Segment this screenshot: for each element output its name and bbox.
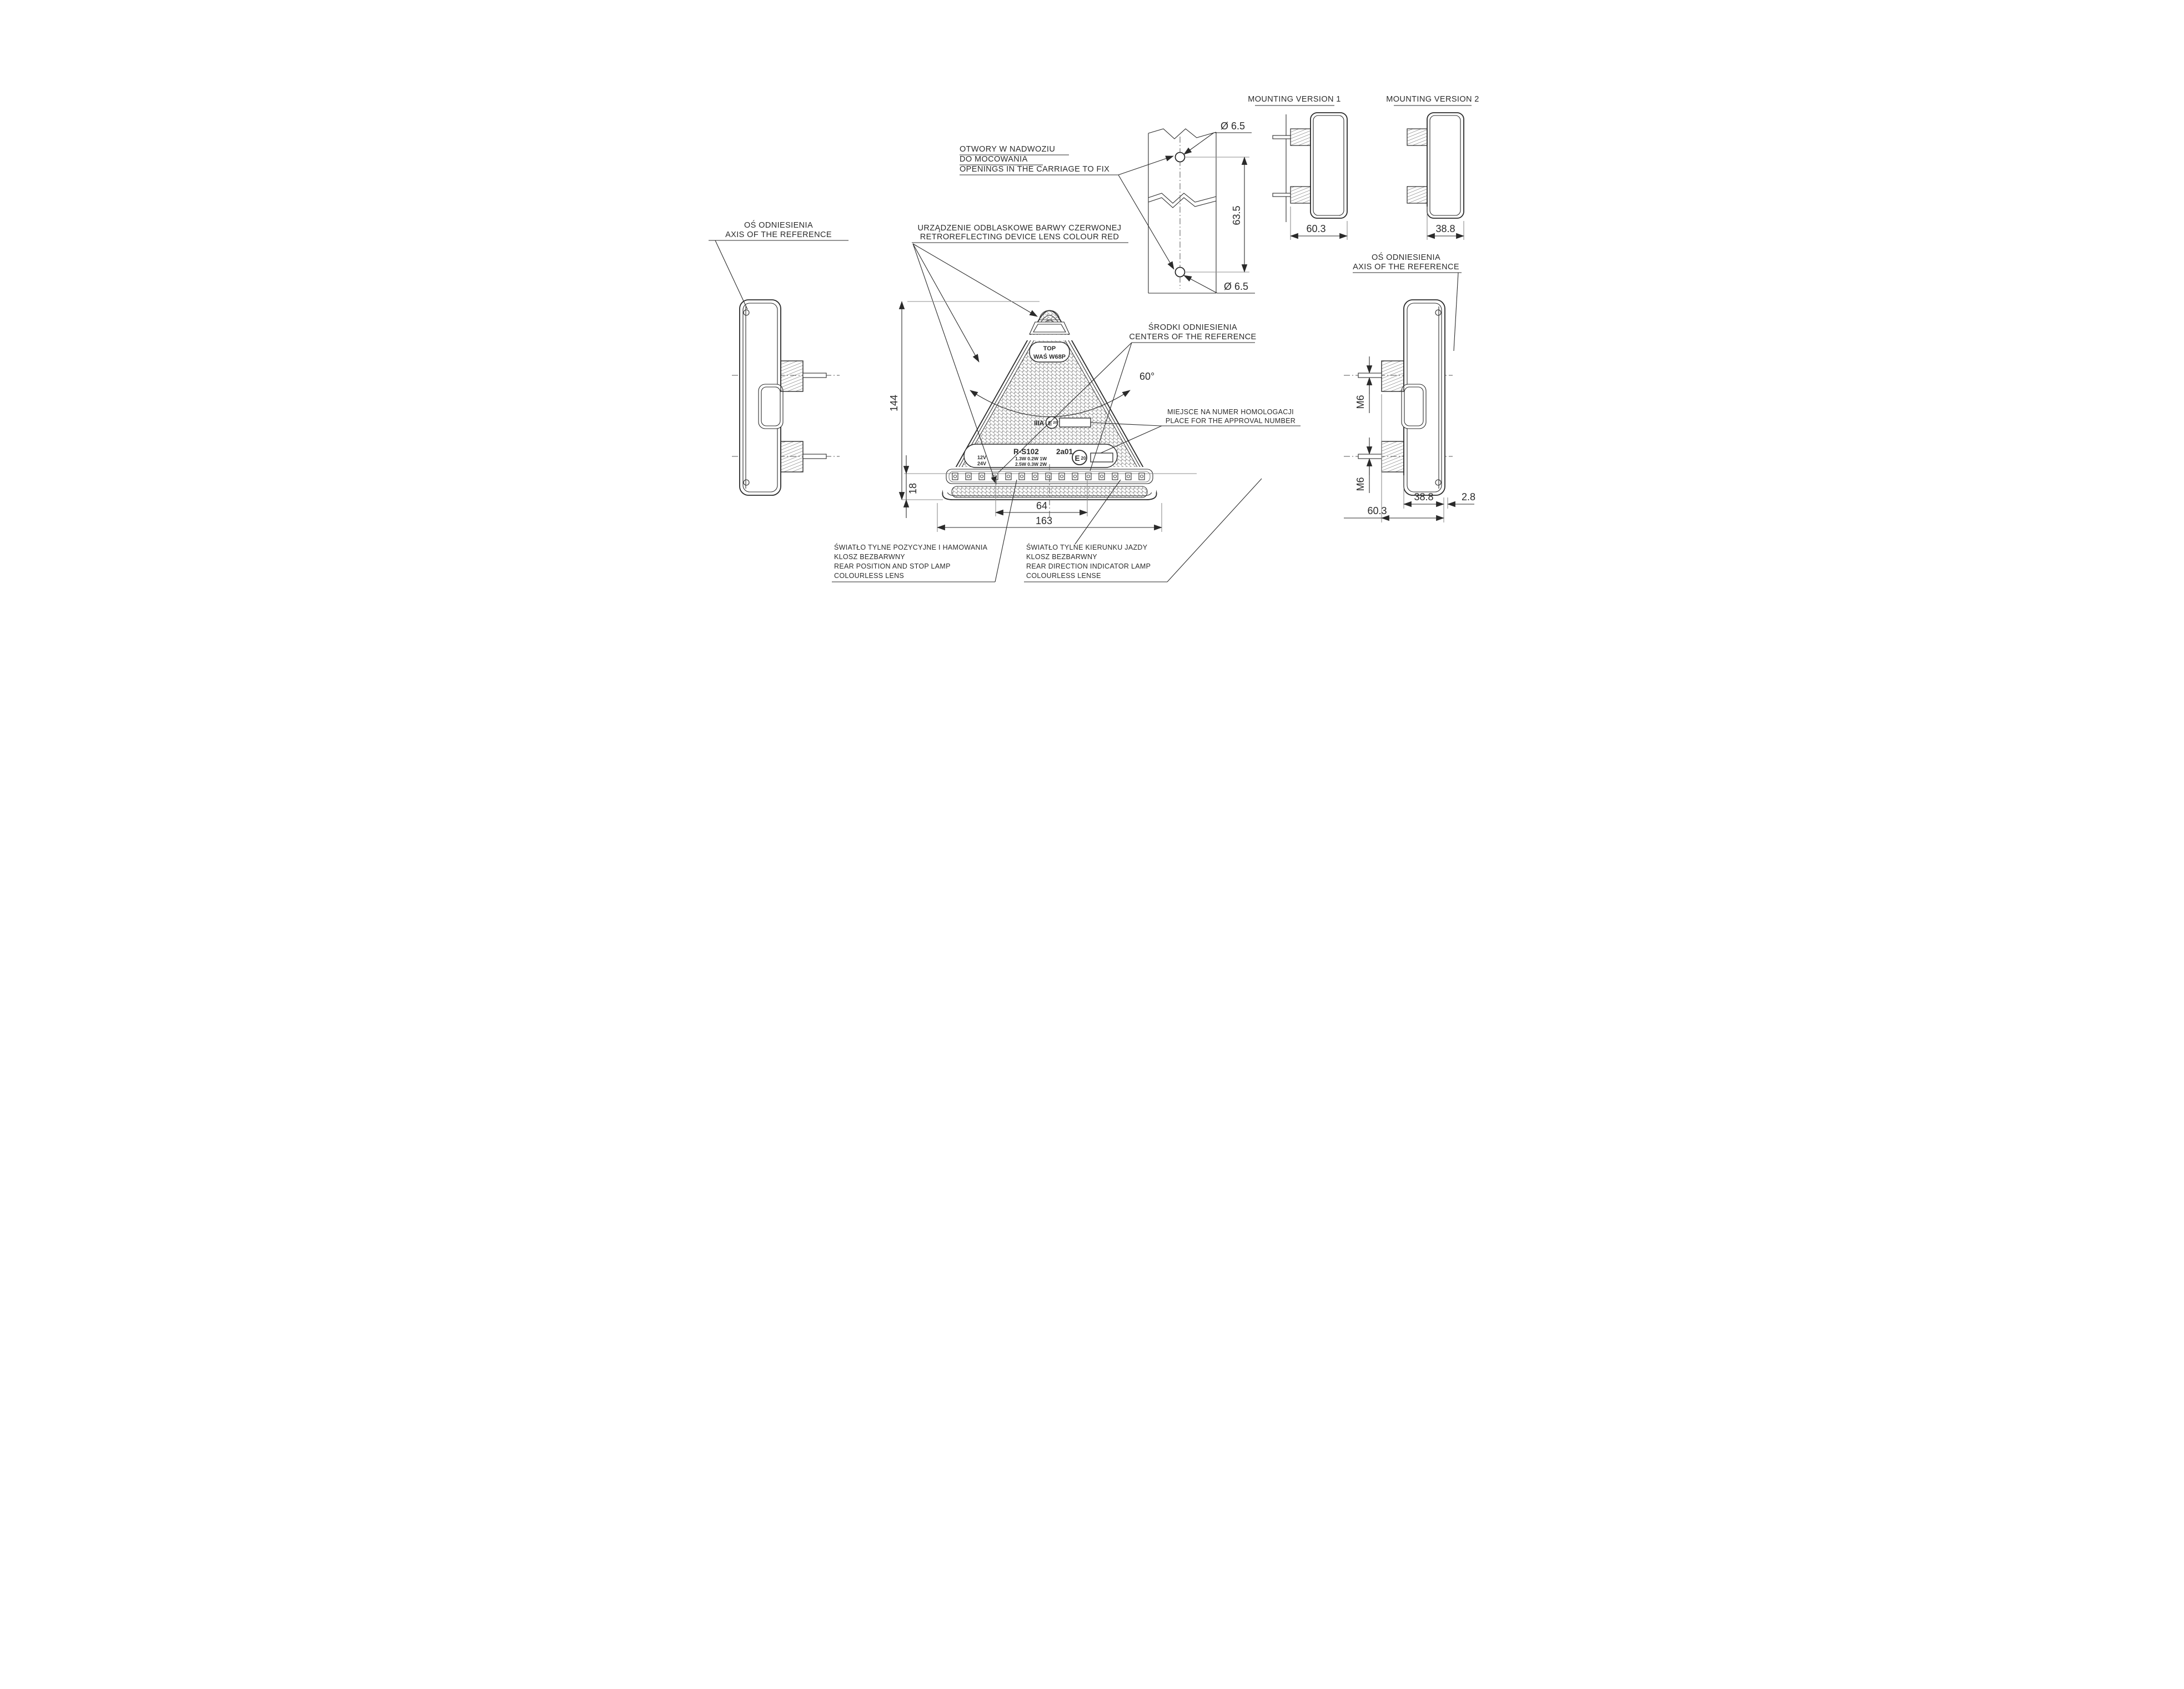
leader bbox=[715, 240, 747, 309]
dim-m6-top: M6 bbox=[1355, 356, 1369, 413]
axis-ref-left-pl: OŚ ODNIESIENIA bbox=[744, 220, 813, 230]
plate-top-break bbox=[1148, 129, 1216, 139]
stud-bottom bbox=[1407, 187, 1427, 203]
axis-ref-right-en: AXIS OF THE REFERENCE bbox=[1353, 263, 1459, 272]
connector-cover bbox=[1402, 384, 1426, 429]
mounting-version-2: MOUNTING VERSION 2 38.8 bbox=[1386, 95, 1479, 240]
connector-cover bbox=[759, 384, 783, 429]
marking-power2: 2.5W 0.3W 2W bbox=[1015, 461, 1047, 467]
openings-en: OPENINGS IN THE CARRIAGE TO FIX bbox=[960, 165, 1109, 174]
leader-band bbox=[913, 244, 996, 484]
stud-bottom bbox=[1291, 187, 1311, 203]
leader-bottom-hole bbox=[1118, 175, 1174, 269]
ind-pl2: KLOSZ BEZBARWNY bbox=[1026, 553, 1097, 561]
dim-hole-dia-top: Ø 6.5 bbox=[1184, 120, 1252, 154]
dim-base-width: 163 bbox=[1036, 515, 1052, 526]
right-side-view: M6 M6 38.8 2.8 60.3 bbox=[1344, 300, 1475, 522]
marking-voltage2: 24V bbox=[977, 461, 986, 466]
dim-depth-body: 38.8 bbox=[1414, 491, 1433, 502]
centers-pl: ŚRODKI ODNIESIENIA bbox=[1148, 322, 1237, 332]
stop-pl2: KLOSZ BEZBARWNY bbox=[834, 553, 905, 561]
approval-number-box-low bbox=[1091, 453, 1113, 462]
housing bbox=[1311, 113, 1347, 218]
mounting-v1-title: MOUNTING VERSION 1 bbox=[1248, 95, 1341, 104]
technical-drawing-sheet: OŚ ODNIESIENIA AXIS OF THE REFERENCE TOP… bbox=[655, 0, 1529, 676]
pin-bottom bbox=[803, 454, 826, 459]
pin-top bbox=[1273, 135, 1291, 139]
pin-top bbox=[1358, 373, 1382, 378]
thread-size-bottom: M6 bbox=[1355, 477, 1366, 491]
mounting-v2-title: MOUNTING VERSION 2 bbox=[1386, 95, 1479, 104]
e-mark-letter-low: E bbox=[1075, 454, 1080, 463]
axis-ref-left-en: AXIS OF THE REFERENCE bbox=[725, 230, 832, 239]
openings-pl1: OTWORY W NADWOZIU bbox=[960, 145, 1055, 154]
pin-top bbox=[803, 373, 826, 378]
housing bbox=[1427, 113, 1464, 218]
dim-height: 144 bbox=[888, 395, 900, 411]
ind-pl1: ŚWIATŁO TYLNE KIERUNKU JAZDY bbox=[1026, 543, 1148, 551]
approval-pl: MIEJSCE NA NUMER HOMOLOGACJI bbox=[1167, 408, 1294, 416]
openings-label: OTWORY W NADWOZIU DO MOCOWANIA OPENINGS … bbox=[960, 145, 1174, 269]
stop-en1: REAR POSITION AND STOP LAMP bbox=[834, 562, 951, 570]
front-view-triangle: TOP WAŚ W68P IIIA E 20 12V 24V R-S102 2a… bbox=[904, 310, 1197, 521]
angle-value: 60° bbox=[1139, 371, 1154, 382]
marking-voltage1: 12V bbox=[977, 455, 986, 460]
marking-model: WAŚ W68P bbox=[1033, 353, 1066, 360]
approval-en: PLACE FOR THE APPROVAL NUMBER bbox=[1166, 417, 1296, 425]
dim-bottom-offset: 18 bbox=[907, 483, 918, 494]
hole-pattern-detail: 63.5 Ø 6.5 Ø 6.5 bbox=[1148, 120, 1255, 293]
marking-type: R-S102 bbox=[1013, 448, 1039, 456]
hole-dia-top-value: Ø 6.5 bbox=[1221, 120, 1245, 132]
leader-lens bbox=[913, 244, 979, 362]
threaded-stud-top bbox=[781, 361, 803, 391]
retro-en: RETROREFLECTING DEVICE LENS COLOUR RED bbox=[920, 233, 1119, 242]
stop-pl1: ŚWIATŁO TYLNE POZYCYJNE I HAMOWANIA bbox=[834, 543, 988, 551]
leds bbox=[952, 473, 1144, 480]
dim-hole-spacing: 63.5 bbox=[1231, 205, 1242, 225]
mounting-version-1: MOUNTING VERSION 1 60.3 bbox=[1248, 95, 1347, 240]
mounting-hole-top bbox=[1176, 153, 1185, 162]
e-mark-number-mid: 20 bbox=[1053, 421, 1057, 425]
pin-bottom bbox=[1358, 454, 1382, 459]
centers-en: CENTERS OF THE REFERENCE bbox=[1129, 333, 1256, 341]
marking-approval-code: 2a01 bbox=[1056, 448, 1073, 456]
stud-top bbox=[1407, 129, 1427, 145]
marking-class: IIIA bbox=[1034, 420, 1044, 427]
leader-top-hole bbox=[1118, 156, 1173, 175]
window-gap bbox=[1022, 335, 1077, 340]
openings-pl2: DO MOCOWANIA bbox=[960, 155, 1028, 164]
dim-depth-body-v2: 38.8 bbox=[1435, 223, 1455, 234]
drawing-canvas: OŚ ODNIESIENIA AXIS OF THE REFERENCE TOP… bbox=[655, 0, 1529, 676]
thread-size-top: M6 bbox=[1355, 395, 1366, 409]
dim-m6-bottom: M6 bbox=[1355, 438, 1369, 493]
approval-number-box-mid bbox=[1060, 418, 1091, 427]
axis-ref-right-pl: OŚ ODNIESIENIA bbox=[1372, 252, 1440, 262]
dim-lens-lip: 2.8 bbox=[1462, 491, 1475, 502]
stud-top bbox=[1291, 129, 1311, 145]
marking-power1: 1.3W 0.2W 1W bbox=[1015, 456, 1047, 461]
dim-depth-total: 60.3 bbox=[1367, 505, 1387, 516]
dim-hole-dia-bottom: Ø 6.5 bbox=[1184, 275, 1255, 293]
leader bbox=[1454, 273, 1458, 351]
threaded-stud-top bbox=[1382, 361, 1404, 391]
apex-reflector bbox=[1040, 310, 1060, 320]
threaded-stud-bottom bbox=[1382, 441, 1404, 472]
dim-18: 18 bbox=[906, 455, 918, 518]
plate-mid-break-1 bbox=[1148, 193, 1216, 203]
leader-right bbox=[1167, 479, 1262, 582]
mounting-hole-bottom bbox=[1176, 268, 1185, 277]
hole-dia-bottom-value: Ø 6.5 bbox=[1224, 281, 1248, 292]
apex-window-inner bbox=[1033, 324, 1066, 332]
leader-apex bbox=[913, 244, 1037, 316]
dim-63-5: 63.5 bbox=[1186, 157, 1249, 272]
marking-top: TOP bbox=[1043, 345, 1056, 352]
ind-en2: COLOURLESS LENSE bbox=[1026, 572, 1101, 580]
dim-depth-total-v1: 60.3 bbox=[1306, 223, 1326, 234]
led-row bbox=[952, 473, 1144, 480]
retro-pl: URZĄDZENIE ODBLASKOWE BARWY CZERWONEJ bbox=[918, 224, 1122, 233]
ind-en1: REAR DIRECTION INDICATOR LAMP bbox=[1026, 562, 1151, 570]
dim-2-8: 2.8 bbox=[1448, 491, 1475, 509]
axis-reference-label-left: OŚ ODNIESIENIA AXIS OF THE REFERENCE bbox=[709, 220, 849, 309]
dim-led-spacing: 64 bbox=[1036, 500, 1047, 511]
threaded-stud-bottom bbox=[781, 441, 803, 472]
pin-bottom bbox=[1273, 193, 1291, 197]
stop-en2: COLOURLESS LENS bbox=[834, 572, 904, 580]
dim-163: 163 bbox=[937, 503, 1162, 532]
left-side-view bbox=[732, 300, 840, 495]
e-mark-number-low: 20 bbox=[1081, 456, 1086, 461]
